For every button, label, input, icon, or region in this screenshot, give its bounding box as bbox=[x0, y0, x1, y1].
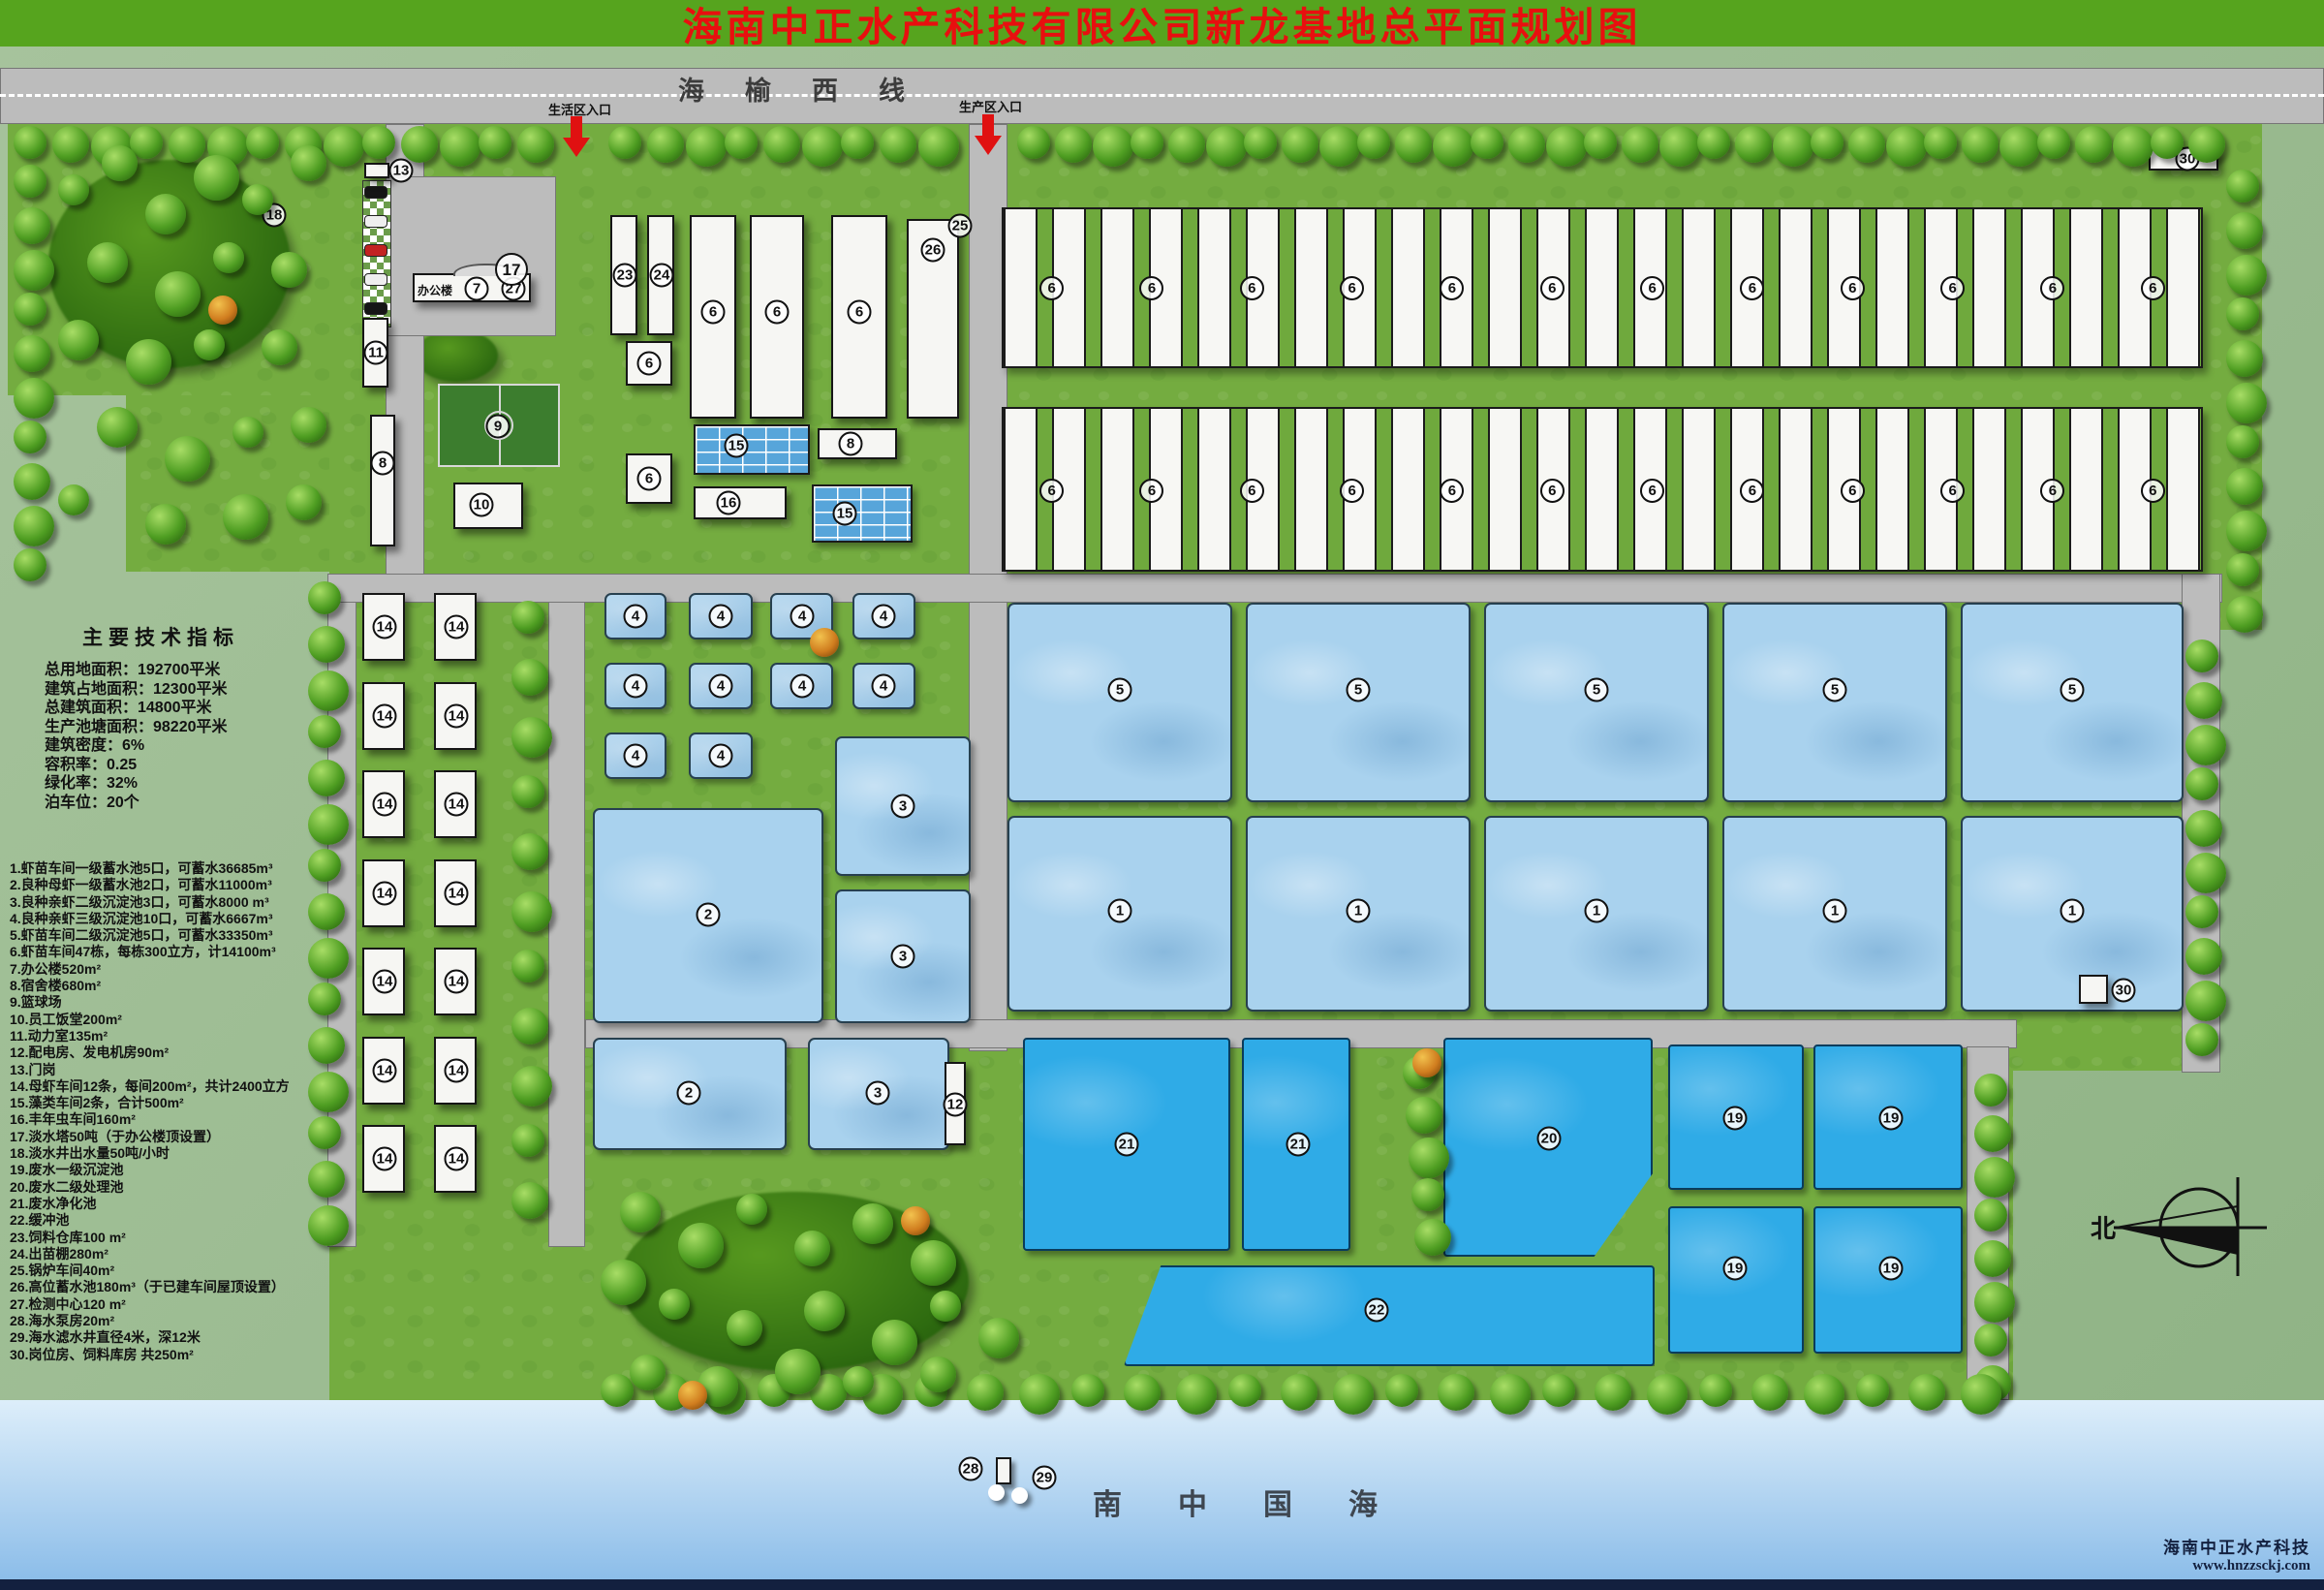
tree-icon bbox=[620, 1192, 661, 1232]
marker-6: 6 bbox=[1940, 479, 1965, 503]
pond-5 bbox=[1246, 603, 1471, 802]
tree-icon bbox=[14, 506, 54, 546]
legend-item: 21.废水净化池 bbox=[10, 1196, 329, 1212]
algae-pond-15-b bbox=[812, 484, 913, 543]
marker-6: 6 bbox=[1340, 479, 1364, 503]
marker-30: 30 bbox=[2112, 979, 2136, 1003]
marker-28: 28 bbox=[959, 1457, 983, 1481]
marker-21: 21 bbox=[1286, 1133, 1311, 1157]
car bbox=[364, 186, 387, 199]
marker-4: 4 bbox=[709, 674, 733, 699]
marker-4: 4 bbox=[872, 605, 896, 629]
tree-icon bbox=[1281, 1374, 1317, 1411]
tree-icon bbox=[763, 126, 800, 163]
tree-icon bbox=[1055, 126, 1092, 163]
tree-icon bbox=[1962, 126, 1999, 163]
workshop-row-6-lower-labels: 666666666666 bbox=[1002, 477, 2203, 504]
tree-icon bbox=[852, 1203, 893, 1244]
tree-icon bbox=[1490, 1374, 1531, 1415]
tree-icon bbox=[102, 145, 138, 181]
tree-icon bbox=[155, 271, 201, 317]
tree-icon bbox=[2226, 425, 2259, 458]
marker-15: 15 bbox=[833, 502, 857, 526]
seawater-pump-house-28 bbox=[996, 1457, 1011, 1484]
tree-icon bbox=[14, 378, 54, 419]
marker-14: 14 bbox=[445, 793, 469, 817]
marker-6: 6 bbox=[1440, 479, 1464, 503]
tree-icon bbox=[1773, 126, 1813, 167]
filter-well-29 bbox=[1011, 1487, 1028, 1504]
tree-icon bbox=[14, 463, 50, 500]
tree-icon bbox=[841, 126, 874, 159]
legend-item: 9.篮球场 bbox=[10, 994, 329, 1011]
algae-pond-15-a bbox=[694, 424, 810, 475]
tree-icon bbox=[1848, 126, 1885, 163]
marker-6: 6 bbox=[1540, 276, 1565, 300]
tree-icon bbox=[517, 126, 554, 163]
tree-icon bbox=[440, 126, 480, 167]
tree-icon bbox=[308, 1027, 345, 1064]
tree-icon bbox=[1124, 1374, 1161, 1411]
tree-icon bbox=[601, 1374, 634, 1407]
marker-4: 4 bbox=[790, 605, 815, 629]
tree-icon bbox=[511, 1066, 552, 1107]
tree-icon bbox=[1228, 1374, 1261, 1407]
legend-item: 13.门岗 bbox=[10, 1062, 329, 1078]
tree-icon bbox=[1811, 126, 1844, 159]
tree-icon bbox=[511, 1008, 548, 1044]
marker-6: 6 bbox=[1540, 479, 1565, 503]
tree-icon bbox=[1438, 1374, 1474, 1411]
tree-icon bbox=[1071, 1374, 1104, 1407]
tree-icon bbox=[1856, 1374, 1889, 1407]
dormitory-8 bbox=[370, 415, 395, 546]
filter-well-29 bbox=[988, 1484, 1005, 1501]
tree-icon bbox=[2226, 553, 2259, 586]
marker-29: 29 bbox=[1033, 1466, 1057, 1490]
tree-icon bbox=[1433, 126, 1473, 167]
tree-icon bbox=[58, 320, 99, 360]
marker-25: 25 bbox=[948, 214, 973, 238]
tree-icon bbox=[967, 1374, 1004, 1411]
tree-icon bbox=[880, 126, 916, 163]
tree-icon bbox=[511, 950, 544, 982]
tree-icon bbox=[87, 242, 128, 283]
marker-4: 4 bbox=[624, 674, 648, 699]
tree-icon bbox=[308, 670, 349, 711]
tree-icon bbox=[308, 1161, 345, 1198]
marker-10: 10 bbox=[470, 493, 494, 517]
tree-icon bbox=[659, 1289, 690, 1320]
tree-icon bbox=[1019, 1374, 1060, 1415]
footer-company: 海南中正水产科技 bbox=[2163, 1534, 2310, 1558]
tree-icon bbox=[97, 407, 138, 448]
tree-icon bbox=[14, 207, 50, 244]
tree-icon bbox=[1595, 1374, 1631, 1411]
tree-icon bbox=[14, 250, 54, 291]
tree-icon bbox=[58, 484, 89, 515]
tree-icon bbox=[291, 407, 326, 443]
footer-website: www.hnzzsckj.com bbox=[2163, 1558, 2310, 1574]
tree-icon bbox=[1974, 1199, 2007, 1231]
tree-icon bbox=[308, 982, 341, 1015]
tree-icon bbox=[1282, 126, 1318, 163]
legend-item: 27.检测中心120 m² bbox=[10, 1296, 329, 1313]
marker-14: 14 bbox=[373, 970, 397, 994]
tree-icon bbox=[213, 242, 244, 273]
tree-icon bbox=[2185, 938, 2222, 975]
marker-7: 7 bbox=[465, 277, 489, 301]
tree-icon bbox=[2185, 639, 2218, 672]
tree-icon bbox=[2185, 853, 2226, 893]
legend-item: 18.淡水井出水量50吨/小时 bbox=[10, 1145, 329, 1162]
marker-6: 6 bbox=[1841, 479, 1865, 503]
tree-icon bbox=[2226, 596, 2263, 633]
marker-14: 14 bbox=[373, 1059, 397, 1083]
tree-icon bbox=[2226, 340, 2263, 377]
marker-4: 4 bbox=[624, 744, 648, 768]
tree-icon bbox=[2226, 468, 2263, 505]
marker-14: 14 bbox=[445, 882, 469, 906]
tree-icon bbox=[232, 417, 263, 448]
marker-6: 6 bbox=[1139, 276, 1163, 300]
marker-14: 14 bbox=[445, 1147, 469, 1171]
car bbox=[364, 273, 387, 286]
garden-grove bbox=[415, 329, 498, 382]
tree-icon bbox=[2185, 981, 2226, 1021]
tree-icon bbox=[145, 504, 186, 545]
car bbox=[364, 302, 387, 315]
marker-15: 15 bbox=[725, 434, 749, 458]
tree-icon bbox=[308, 1072, 349, 1112]
guard-feed-building-30-b bbox=[2079, 975, 2108, 1004]
tree-icon bbox=[725, 126, 758, 159]
flower-tree-icon bbox=[901, 1206, 930, 1235]
tree-icon bbox=[1546, 126, 1587, 167]
tree-icon bbox=[14, 126, 46, 159]
tree-icon bbox=[308, 715, 341, 748]
tree-icon bbox=[262, 329, 297, 365]
indicator-line: 总建筑面积：14800平米 bbox=[45, 699, 277, 718]
tree-icon bbox=[58, 174, 89, 205]
tree-icon bbox=[1659, 126, 1700, 167]
tree-icon bbox=[401, 126, 438, 163]
sea-bottom-bar bbox=[0, 1579, 2324, 1590]
marker-6: 6 bbox=[2040, 479, 2064, 503]
marker-6: 6 bbox=[1740, 276, 1764, 300]
marker-6: 6 bbox=[2040, 276, 2064, 300]
marker-6: 6 bbox=[701, 300, 726, 325]
marker-20: 20 bbox=[1537, 1127, 1562, 1151]
flower-tree-icon bbox=[810, 628, 839, 657]
marker-19: 19 bbox=[1723, 1257, 1748, 1281]
tree-icon bbox=[1974, 1282, 2015, 1323]
indicator-line: 容积率：0.25 bbox=[45, 756, 277, 775]
page-title: 海南中正水产科技有限公司新龙基地总平面规划图 bbox=[683, 0, 1642, 52]
tree-icon bbox=[14, 548, 46, 581]
tree-icon bbox=[511, 1124, 544, 1157]
tree-icon bbox=[2226, 297, 2259, 330]
entrance-life-arrowhead bbox=[563, 138, 590, 157]
entrance-production-label: 生产区入口 bbox=[959, 97, 1022, 115]
tree-icon bbox=[362, 126, 395, 159]
tree-icon bbox=[1206, 126, 1247, 167]
legend-item: 23.饲料仓库100 m² bbox=[10, 1230, 329, 1246]
legend-item: 26.高位蓄水池180m³（于已建车间屋顶设置） bbox=[10, 1279, 329, 1295]
marker-13: 13 bbox=[389, 159, 414, 183]
tree-icon bbox=[2113, 126, 2154, 167]
legend-item: 2.良种母虾一级蓄水池2口，可蓄水11000m³ bbox=[10, 877, 329, 893]
tree-icon bbox=[1017, 126, 1050, 159]
tree-icon bbox=[1697, 126, 1730, 159]
tree-icon bbox=[511, 833, 548, 870]
highway-centerline bbox=[0, 94, 2324, 97]
tree-icon bbox=[223, 494, 268, 540]
tree-icon bbox=[1176, 1374, 1217, 1415]
car bbox=[364, 244, 387, 257]
tree-icon bbox=[678, 1223, 724, 1268]
tree-icon bbox=[1974, 1074, 2007, 1107]
marker-6: 6 bbox=[1841, 276, 1865, 300]
tree-icon bbox=[324, 126, 364, 167]
marker-14: 14 bbox=[373, 615, 397, 639]
marker-4: 4 bbox=[709, 744, 733, 768]
legend-item: 20.废水二级处理池 bbox=[10, 1179, 329, 1196]
tree-icon bbox=[2226, 511, 2267, 551]
marker-6: 6 bbox=[1139, 479, 1163, 503]
tree-icon bbox=[2037, 126, 2070, 159]
tree-icon bbox=[727, 1310, 762, 1346]
marker-4: 4 bbox=[624, 605, 648, 629]
legend-panel: 1.虾苗车间一级蓄水池5口，可蓄水36685m³2.良种母虾一级蓄水池2口，可蓄… bbox=[10, 860, 329, 1363]
legend-item: 16.丰年虫车间160m² bbox=[10, 1111, 329, 1128]
tree-icon bbox=[1319, 126, 1360, 167]
legend-item: 19.废水一级沉淀池 bbox=[10, 1162, 329, 1178]
tree-icon bbox=[911, 1240, 956, 1286]
tree-icon bbox=[52, 126, 89, 163]
tree-icon bbox=[1244, 126, 1277, 159]
tree-icon bbox=[2226, 383, 2267, 423]
marker-5: 5 bbox=[1347, 678, 1371, 702]
site-plan-canvas: 海榆西线 生活区入口 生产区入口 办公楼 bbox=[0, 0, 2324, 1590]
tree-icon bbox=[511, 717, 552, 758]
entrance-production-arrowhead bbox=[975, 136, 1002, 155]
tree-icon bbox=[1411, 1178, 1444, 1211]
tree-icon bbox=[511, 891, 552, 932]
marker-5: 5 bbox=[1585, 678, 1609, 702]
marker-6: 6 bbox=[1340, 276, 1364, 300]
tree-icon bbox=[1471, 126, 1503, 159]
tree-icon bbox=[1974, 1115, 2011, 1152]
tree-icon bbox=[165, 436, 210, 482]
compass-north-label: 北 bbox=[2091, 1214, 2116, 1243]
marker-5: 5 bbox=[1823, 678, 1847, 702]
tree-icon bbox=[647, 126, 684, 163]
tree-icon bbox=[271, 252, 307, 288]
tree-icon bbox=[918, 126, 959, 167]
legend-item: 29.海水滤水井直径4米，深12米 bbox=[10, 1329, 329, 1346]
tree-icon bbox=[286, 484, 322, 520]
tree-icon bbox=[511, 659, 548, 696]
tree-icon bbox=[794, 1231, 830, 1266]
tree-icon bbox=[1804, 1374, 1844, 1415]
marker-24: 24 bbox=[650, 264, 674, 288]
marker-6: 6 bbox=[1240, 276, 1264, 300]
tree-icon bbox=[242, 184, 273, 215]
pond-5 bbox=[1007, 603, 1232, 802]
technical-indicators-panel: 主要技术指标 总用地面积：192700平米建筑占地面积：12300平米总建筑面积… bbox=[45, 622, 277, 812]
tree-icon bbox=[308, 893, 345, 930]
tree-icon bbox=[2185, 1023, 2218, 1056]
marker-6: 6 bbox=[2141, 479, 2165, 503]
marker-19: 19 bbox=[1879, 1257, 1904, 1281]
road-mid-vertical bbox=[548, 574, 585, 1247]
tree-icon bbox=[736, 1194, 767, 1225]
workshop-row-6-upper-labels: 666666666666 bbox=[1002, 274, 2203, 301]
flower-tree-icon bbox=[678, 1381, 707, 1410]
tree-icon bbox=[14, 293, 46, 326]
marker-16: 16 bbox=[717, 491, 741, 515]
marker-9: 9 bbox=[486, 415, 511, 439]
technical-indicators-lines: 总用地面积：192700平米建筑占地面积：12300平米总建筑面积：14800平… bbox=[45, 661, 277, 812]
tree-icon bbox=[194, 155, 239, 201]
tree-icon bbox=[2185, 725, 2226, 765]
pond-5 bbox=[1484, 603, 1709, 802]
marker-21: 21 bbox=[1115, 1133, 1139, 1157]
tree-icon bbox=[1699, 1374, 1732, 1407]
tree-icon bbox=[872, 1320, 917, 1365]
indicator-line: 绿化率：32% bbox=[45, 774, 277, 794]
marker-3: 3 bbox=[891, 795, 915, 819]
tree-icon bbox=[686, 126, 727, 167]
footer-logo: 海南中正水产科技 www.hnzzsckj.com bbox=[2163, 1534, 2310, 1574]
tree-icon bbox=[126, 339, 171, 385]
marker-1: 1 bbox=[1585, 899, 1609, 923]
tree-icon bbox=[1414, 1219, 1451, 1256]
marker-8: 8 bbox=[839, 432, 863, 456]
tree-icon bbox=[1584, 126, 1617, 159]
marker-3: 3 bbox=[891, 945, 915, 969]
marker-23: 23 bbox=[613, 264, 637, 288]
legend-item: 5.虾苗车间二级沉淀池5口，可蓄水33350m³ bbox=[10, 927, 329, 944]
gate-house-13 bbox=[364, 163, 389, 178]
marker-1: 1 bbox=[1347, 899, 1371, 923]
tree-icon bbox=[1974, 1157, 2015, 1198]
legend-item: 30.岗位房、饲料库房 共250m² bbox=[10, 1347, 329, 1363]
tree-icon bbox=[1961, 1374, 2001, 1415]
legend-item: 17.淡水塔50吨（于办公楼顶设置） bbox=[10, 1129, 329, 1145]
tree-icon bbox=[1974, 1324, 2007, 1356]
tree-icon bbox=[479, 126, 511, 159]
marker-4: 4 bbox=[872, 674, 896, 699]
tree-icon bbox=[511, 775, 544, 808]
tree-icon bbox=[608, 126, 641, 159]
marker-6: 6 bbox=[2141, 276, 2165, 300]
tree-icon bbox=[1093, 126, 1133, 167]
legend-item: 14.母虾车间12条，每间200m²，共计2400立方 bbox=[10, 1078, 329, 1095]
tree-icon bbox=[630, 1355, 666, 1390]
tree-icon bbox=[1974, 1240, 2011, 1277]
tree-icon bbox=[169, 126, 205, 163]
legend-item: 28.海水泵房20m² bbox=[10, 1313, 329, 1329]
marker-22: 22 bbox=[1365, 1298, 1389, 1323]
tree-icon bbox=[1406, 1097, 1442, 1134]
tree-icon bbox=[920, 1356, 956, 1392]
tree-icon bbox=[930, 1291, 961, 1322]
tree-icon bbox=[1168, 126, 1205, 163]
indicator-line: 建筑密度：6% bbox=[45, 736, 277, 756]
tree-icon bbox=[2185, 895, 2218, 928]
tree-icon bbox=[1333, 1374, 1374, 1415]
tree-icon bbox=[2185, 767, 2218, 800]
marker-14: 14 bbox=[445, 704, 469, 729]
marker-4: 4 bbox=[709, 605, 733, 629]
flower-tree-icon bbox=[208, 296, 237, 325]
legend-item: 8.宿舍楼680m² bbox=[10, 978, 329, 994]
marker-6: 6 bbox=[637, 352, 662, 376]
tree-icon bbox=[2226, 170, 2259, 203]
tree-icon bbox=[1508, 126, 1545, 163]
marker-2: 2 bbox=[677, 1081, 701, 1106]
marker-6: 6 bbox=[1240, 479, 1264, 503]
marker-6: 6 bbox=[1039, 276, 1064, 300]
marker-6: 6 bbox=[1940, 276, 1965, 300]
marker-4: 4 bbox=[790, 674, 815, 699]
office-building-label: 办公楼 bbox=[418, 282, 452, 298]
entrance-life-arrow bbox=[571, 116, 582, 138]
legend-item: 3.良种亲虾二级沉淀池3口，可蓄水8000 m³ bbox=[10, 894, 329, 911]
tree-icon bbox=[1647, 1374, 1688, 1415]
tree-icon bbox=[1735, 126, 1772, 163]
car bbox=[364, 215, 387, 228]
legend-item: 6.虾苗车间47栋，每栋300立方，计14100m³ bbox=[10, 944, 329, 960]
tree-icon bbox=[308, 626, 345, 663]
tree-icon bbox=[14, 421, 46, 453]
tree-icon bbox=[2075, 126, 2112, 163]
tree-icon bbox=[2185, 810, 2222, 847]
entrance-production-arrow bbox=[982, 114, 994, 136]
buffer-pond-22 bbox=[1124, 1265, 1655, 1366]
tree-icon bbox=[978, 1318, 1019, 1358]
tree-icon bbox=[1542, 1374, 1575, 1407]
legend-item: 4.良种亲虾三级沉淀池10口，可蓄水6667m³ bbox=[10, 911, 329, 927]
marker-2: 2 bbox=[697, 903, 721, 927]
marker-6: 6 bbox=[1640, 479, 1664, 503]
marker-6: 6 bbox=[1039, 479, 1064, 503]
tree-icon bbox=[291, 145, 326, 181]
office-plaza bbox=[386, 176, 556, 336]
marker-19: 19 bbox=[1723, 1107, 1748, 1131]
tree-icon bbox=[843, 1366, 874, 1397]
tree-icon bbox=[1622, 126, 1658, 163]
marker-1: 1 bbox=[1823, 899, 1847, 923]
tree-icon bbox=[1395, 126, 1432, 163]
legend-item: 10.员工饭堂200m² bbox=[10, 1012, 329, 1028]
marker-1: 1 bbox=[2061, 899, 2085, 923]
legend-item: 24.出苗棚280m² bbox=[10, 1246, 329, 1263]
indicator-line: 生产池塘面积：98220平米 bbox=[45, 718, 277, 737]
indicator-line: 建筑占地面积：12300平米 bbox=[45, 680, 277, 700]
marker-12: 12 bbox=[944, 1093, 968, 1117]
marker-1: 1 bbox=[1108, 899, 1132, 923]
marker-6: 6 bbox=[765, 300, 790, 325]
legend-item: 22.缓冲池 bbox=[10, 1212, 329, 1229]
legend-item: 11.动力室135m² bbox=[10, 1028, 329, 1044]
technical-indicators-heading: 主要技术指标 bbox=[45, 622, 277, 651]
title-band: 海南中正水产科技有限公司新龙基地总平面规划图 bbox=[0, 0, 2324, 47]
tree-icon bbox=[1886, 126, 1927, 167]
marker-14: 14 bbox=[445, 970, 469, 994]
